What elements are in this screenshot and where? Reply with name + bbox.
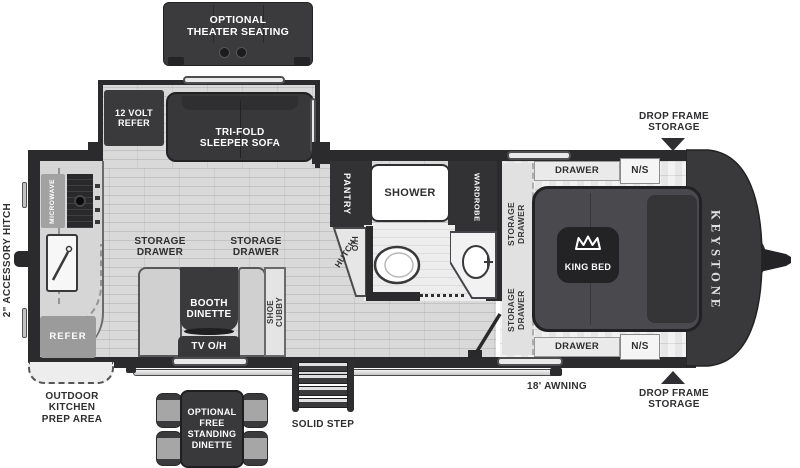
step-tread xyxy=(298,386,348,396)
theater-seating: OPTIONAL THEATER SEATING xyxy=(163,2,313,66)
rear-hitch-stub xyxy=(14,251,29,267)
cupholder-icon xyxy=(236,47,247,58)
dinette-chair xyxy=(156,431,182,466)
slideout-window xyxy=(183,76,285,84)
king-bed-badge: KING BED xyxy=(557,227,619,283)
arrow-down-icon xyxy=(661,138,685,151)
bedroom-drawer-bottom: DRAWER xyxy=(534,337,620,357)
tv-overhead: TV O/H xyxy=(178,336,240,357)
dinette-chair xyxy=(242,393,268,428)
theater-foot-right xyxy=(294,57,310,65)
nightstand-top-label: N/S xyxy=(631,165,649,177)
bedroom-storage-drawer-lower: STORAGE DRAWER xyxy=(507,288,527,332)
shoe-cubby: SHOE CUBBY xyxy=(264,267,286,357)
nightstand-bottom: N/S xyxy=(620,334,660,360)
cupholder-icon xyxy=(219,47,230,58)
theater-foot-left xyxy=(168,57,184,65)
cooktop xyxy=(67,174,93,228)
step-tread xyxy=(298,374,348,384)
drop-frame-storage-bottom-label: DROP FRAME STORAGE xyxy=(639,388,709,411)
step-tread xyxy=(298,362,348,372)
rear-grab-handle xyxy=(22,182,27,208)
bedroom-window-bottom xyxy=(497,357,563,366)
booth-dinette-label: BOOTH DINETTE xyxy=(187,298,232,321)
twelve-volt-refer-label: 12 VOLT REFER xyxy=(115,108,153,129)
refer: REFER xyxy=(40,316,96,358)
theater-seating-label: OPTIONAL THEATER SEATING xyxy=(187,14,289,38)
step-rail-right xyxy=(347,360,354,412)
outdoor-kitchen-area xyxy=(28,362,114,384)
shoe-cubby-label: SHOE CUBBY xyxy=(266,297,284,327)
bed-headboard xyxy=(647,195,697,323)
dinette-bench-right xyxy=(238,267,266,357)
toilet-icon xyxy=(372,244,422,286)
crown-icon xyxy=(573,234,603,252)
storage-drawer-label-right: STORAGE DRAWER xyxy=(230,236,281,259)
front-cap xyxy=(686,146,798,372)
shower-label: SHOWER xyxy=(384,187,435,200)
dinette-bench-left xyxy=(138,267,182,357)
solid-step xyxy=(292,358,354,416)
tri-fold-sleeper-sofa: TRI-FOLD SLEEPER SOFA xyxy=(166,92,314,162)
slide-corner-right xyxy=(312,142,330,164)
bedroom-storage-drawer-upper: STORAGE DRAWER xyxy=(507,202,527,246)
faucet-icon xyxy=(48,236,76,290)
brand-label: KEYSTONE xyxy=(708,210,723,311)
sofa-label: TRI-FOLD SLEEPER SOFA xyxy=(200,127,280,150)
rear-grab-handle xyxy=(22,308,27,338)
dinette-chair xyxy=(242,431,268,466)
bath-vanity xyxy=(450,230,498,300)
awning-label: 18' AWNING xyxy=(527,381,587,393)
drawer-top-label: DRAWER xyxy=(555,166,599,177)
arrow-up-icon xyxy=(661,371,685,384)
microwave: MICROWAVE xyxy=(41,174,65,228)
nightstand-bottom-label: N/S xyxy=(631,341,649,353)
outdoor-kitchen-label: OUTDOOR KITCHEN PREP AREA xyxy=(42,391,103,426)
left-wall xyxy=(28,150,40,368)
burner-icon xyxy=(74,195,86,207)
nightstand-top: N/S xyxy=(620,158,660,184)
bedroom-window-top xyxy=(507,151,571,160)
entry-door xyxy=(462,306,506,360)
hitch-coupler-icon xyxy=(760,248,791,272)
king-bed-label: KING BED xyxy=(565,262,611,272)
king-bed: KING BED xyxy=(532,186,702,332)
microwave-label: MICROWAVE xyxy=(49,179,56,224)
step-tread xyxy=(298,398,348,408)
twelve-volt-refer: 12 VOLT REFER xyxy=(104,90,164,146)
overhead-cabinet-label: O/H xyxy=(351,236,360,251)
awning-end-left xyxy=(126,367,136,373)
drop-frame-storage-top-label: DROP FRAME STORAGE xyxy=(639,111,709,134)
table-base xyxy=(184,328,234,335)
bath-wall-bottom-left xyxy=(366,292,420,301)
storage-drawer-label-left: STORAGE DRAWER xyxy=(134,236,185,259)
accessory-hitch-label: 2" ACCESSORY HITCH xyxy=(2,203,14,317)
kitchen-sink xyxy=(46,234,78,292)
awning-end-right xyxy=(550,368,562,376)
free-standing-dinette-label: OPTIONAL FREE STANDING DINETTE xyxy=(188,407,237,452)
refer-label: REFER xyxy=(49,332,86,343)
bedroom-drawer-top: DRAWER xyxy=(534,161,620,181)
wardrobe-label: WARDROBE xyxy=(472,173,481,222)
dinette-chair xyxy=(156,393,182,428)
tv-overhead-label: TV O/H xyxy=(191,341,226,353)
shower: SHOWER xyxy=(370,164,450,222)
living-window-bottom xyxy=(172,357,248,366)
wardrobe: WARDROBE xyxy=(455,161,497,233)
pantry: PANTRY xyxy=(330,161,364,227)
solid-step-label: SOLID STEP xyxy=(292,419,354,431)
cooktop-knobs xyxy=(95,178,100,224)
floorplan-canvas: 12 VOLT REFER TRI-FOLD SLEEPER SOFA OPTI… xyxy=(0,0,800,468)
drawer-bottom-label: DRAWER xyxy=(555,342,599,353)
free-standing-dinette-table: OPTIONAL FREE STANDING DINETTE xyxy=(180,390,244,468)
pantry-label: PANTRY xyxy=(342,173,352,215)
booth-dinette-table: BOOTH DINETTE xyxy=(180,267,238,331)
slide-corner-left xyxy=(88,142,102,163)
bottom-wall xyxy=(40,357,696,368)
